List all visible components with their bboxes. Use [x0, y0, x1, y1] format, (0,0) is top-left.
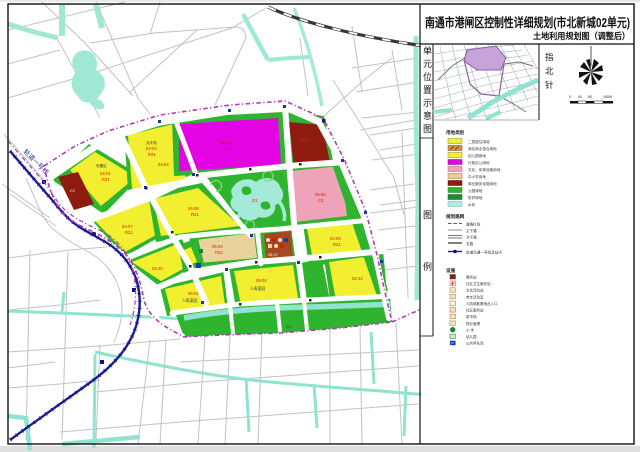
svg-text:行政办公用地: 行政办公用地 [468, 160, 490, 165]
svg-text:04-03: 04-03 [146, 146, 157, 151]
svg-text:04-04: 04-04 [158, 162, 169, 167]
svg-text:G1: G1 [252, 198, 258, 203]
svg-text:160M: 160M [603, 95, 612, 99]
svg-text:03-02: 03-02 [220, 140, 231, 145]
svg-text:R21: R21 [333, 242, 341, 247]
svg-text:C2: C2 [70, 189, 75, 193]
svg-text:北: 北 [545, 66, 554, 76]
svg-text:05-04: 05-04 [212, 244, 223, 249]
svg-text:幼儿园: 幼儿园 [466, 334, 477, 339]
svg-text:04-08: 04-08 [188, 206, 199, 211]
svg-text:元: 元 [423, 59, 432, 69]
svg-text:警务站: 警务站 [466, 275, 477, 280]
svg-text:示: 示 [423, 98, 432, 108]
svg-text:80: 80 [588, 95, 592, 99]
svg-text:设施: 设施 [446, 267, 456, 274]
svg-text:物业管理: 物业管理 [466, 321, 480, 326]
svg-text:社区卫生服务站: 社区卫生服务站 [466, 281, 491, 286]
svg-text:R21: R21 [102, 177, 110, 182]
svg-text:图: 图 [423, 124, 432, 134]
svg-text:主干路: 主干路 [466, 228, 477, 233]
svg-text:安置区: 安置区 [96, 163, 107, 168]
svg-text:兆丰苑: 兆丰苑 [146, 140, 157, 145]
svg-text:用地类别: 用地类别 [446, 129, 465, 136]
svg-text:次干路: 次干路 [466, 235, 477, 240]
svg-text:菜市场: 菜市场 [466, 314, 477, 319]
svg-text:二类居住用地: 二类居住用地 [468, 139, 490, 144]
svg-text:06-01: 06-01 [188, 291, 199, 296]
svg-text:置: 置 [423, 85, 432, 95]
svg-text:文化活动站: 文化活动站 [466, 288, 484, 293]
svg-text:公园绿地: 公园绿地 [468, 188, 483, 193]
svg-text:幼儿园用地: 幼儿园用地 [468, 153, 486, 158]
svg-text:人寿家园: 人寿家园 [182, 298, 197, 303]
svg-text:C3: C3 [318, 198, 324, 203]
svg-text:R21: R21 [125, 230, 133, 235]
svg-text:04-01: 04-01 [100, 171, 111, 176]
svg-text:小 学: 小 学 [466, 328, 474, 333]
svg-text:规划路网: 规划路网 [446, 213, 465, 220]
svg-text:轨道交通一号线及站点: 轨道交通一号线及站点 [466, 250, 502, 255]
svg-text:04-07: 04-07 [122, 224, 133, 229]
svg-text:道路红线: 道路红线 [466, 222, 481, 227]
svg-text:公共停车场: 公共停车场 [466, 341, 484, 346]
svg-text:R22: R22 [215, 250, 223, 255]
svg-text:R21: R21 [148, 152, 156, 157]
svg-text:社区服务站: 社区服务站 [466, 308, 484, 313]
svg-text:南通市港闸区控制性详细规划(市北新城02单元): 南通市港闸区控制性详细规划(市北新城02单元) [425, 15, 630, 30]
svg-text:人寿家园: 人寿家园 [250, 286, 265, 291]
svg-text:文化、体育设施用地: 文化、体育设施用地 [468, 167, 501, 172]
svg-text:人防疏散基地出入口: 人防疏散基地出入口 [466, 301, 498, 306]
svg-text:单: 单 [423, 45, 432, 56]
svg-text:03-01: 03-01 [300, 138, 311, 143]
svg-text:商业服务设施用地: 商业服务设施用地 [468, 181, 497, 186]
svg-text:G2: G2 [286, 324, 292, 329]
svg-text:C1: C1 [224, 146, 230, 151]
svg-text:指: 指 [545, 52, 554, 62]
svg-text:位: 位 [423, 71, 432, 82]
svg-text:支路: 支路 [466, 241, 474, 246]
svg-text:05-07: 05-07 [268, 253, 278, 257]
svg-text:防护绿地: 防护绿地 [468, 195, 483, 200]
svg-text:商住商业混合用地: 商住商业混合用地 [468, 146, 497, 151]
svg-text:土地利用规划图（调整后）: 土地利用规划图（调整后） [533, 30, 630, 41]
svg-text:中小学用地: 中小学用地 [468, 174, 486, 179]
svg-text:02-12: 02-12 [352, 276, 363, 281]
svg-text:水系: 水系 [468, 202, 476, 207]
svg-text:06-02: 06-02 [256, 278, 267, 283]
svg-text:R21: R21 [191, 212, 199, 217]
svg-text:0: 0 [569, 95, 571, 99]
svg-text:例: 例 [423, 261, 432, 272]
svg-text:05-02: 05-02 [315, 192, 326, 197]
svg-text:04-10: 04-10 [152, 266, 163, 271]
svg-text:老年活动室: 老年活动室 [466, 294, 484, 299]
svg-text:图: 图 [423, 210, 432, 220]
svg-text:02-06: 02-06 [330, 236, 341, 241]
svg-text:意: 意 [423, 110, 432, 121]
svg-text:40: 40 [578, 95, 582, 99]
svg-text:针: 针 [545, 80, 554, 90]
